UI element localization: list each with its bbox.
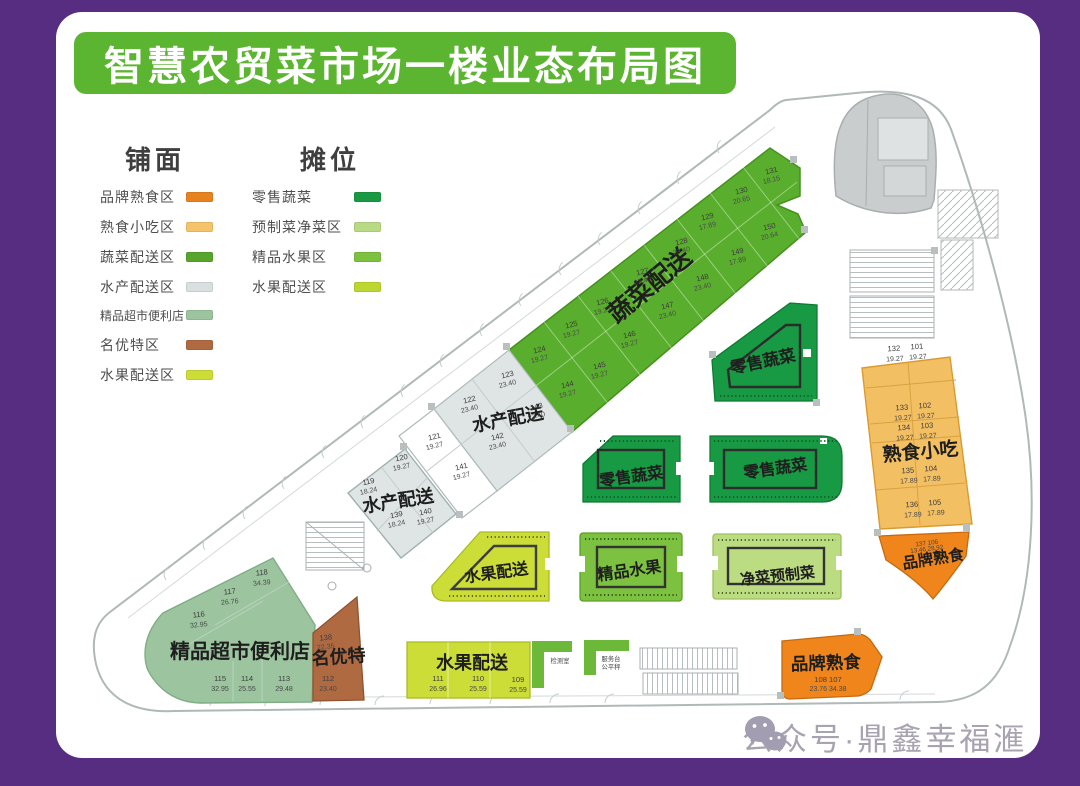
unit-id: 102	[918, 401, 931, 411]
watermark: 公众号·鼎鑫幸福滙	[742, 714, 1027, 759]
unit-area: 23.76 34.38	[810, 686, 847, 693]
unit-id: 116	[192, 609, 205, 619]
unit-area: 23.40	[319, 686, 337, 693]
unit-id: 105	[928, 498, 941, 508]
unit-area: 17.89	[900, 478, 918, 486]
unit-id: 101	[910, 342, 923, 352]
unit-id: 133	[895, 403, 908, 413]
label-brand-deli-bottom: 品牌熟食	[790, 652, 861, 674]
unit-id: 103	[920, 421, 933, 431]
unit-area: 17.89	[927, 510, 945, 518]
wechat-icon	[742, 714, 788, 754]
unit-area: 19.27	[896, 435, 914, 443]
utility-block	[834, 94, 936, 213]
unit-id: 117	[223, 586, 236, 596]
label-fair-scale: 公平秤	[602, 663, 622, 671]
unit-area: 19.27	[919, 433, 937, 441]
unit-area: 17.89	[904, 512, 922, 520]
label-service-desk: 服务台	[602, 654, 621, 663]
unit-id: 104	[924, 464, 937, 474]
unit-id: 132	[887, 344, 900, 354]
unit-area: 17.89	[923, 476, 941, 484]
unit-id: 134	[897, 423, 910, 433]
unit-id: 136	[905, 500, 918, 510]
label-fruit-shop: 水果配送	[436, 652, 509, 673]
unit-id: 113	[278, 674, 290, 683]
label-supermarket: 精品超市便利店	[170, 639, 310, 663]
label-test-room: 检测室	[551, 656, 570, 665]
unit-area: 19.27	[886, 356, 904, 364]
unit-id: 115	[214, 674, 226, 683]
unit-area: 32.95	[211, 686, 229, 693]
unit-id: 135	[901, 466, 914, 476]
unit-area: 25.59	[469, 686, 487, 693]
unit-area: 25.59	[509, 687, 527, 694]
unit-id: 112	[322, 674, 334, 683]
unit-id: 118	[255, 567, 268, 577]
unit-area: 29.48	[275, 686, 293, 693]
unit-id: 138	[319, 632, 333, 642]
unit-area: 19.27	[917, 413, 935, 421]
unit-id: 108 107	[814, 675, 841, 684]
unit-id: 111	[432, 674, 444, 683]
unit-id: 110	[472, 674, 484, 683]
unit-area: 26.96	[429, 686, 447, 693]
unit-area: 19.27	[894, 415, 912, 423]
unit-id: 109	[512, 675, 525, 684]
floorplan: 蔬菜配送 水产配送 水产配送 精品超市便利店 名优特 水果配送 熟食小吃 品牌熟…	[0, 0, 1080, 786]
unit-id: 114	[241, 674, 253, 683]
unit-area: 25.55	[238, 686, 256, 693]
unit-area: 19.27	[909, 354, 927, 362]
stall-clean-prepared-veg	[709, 534, 845, 599]
